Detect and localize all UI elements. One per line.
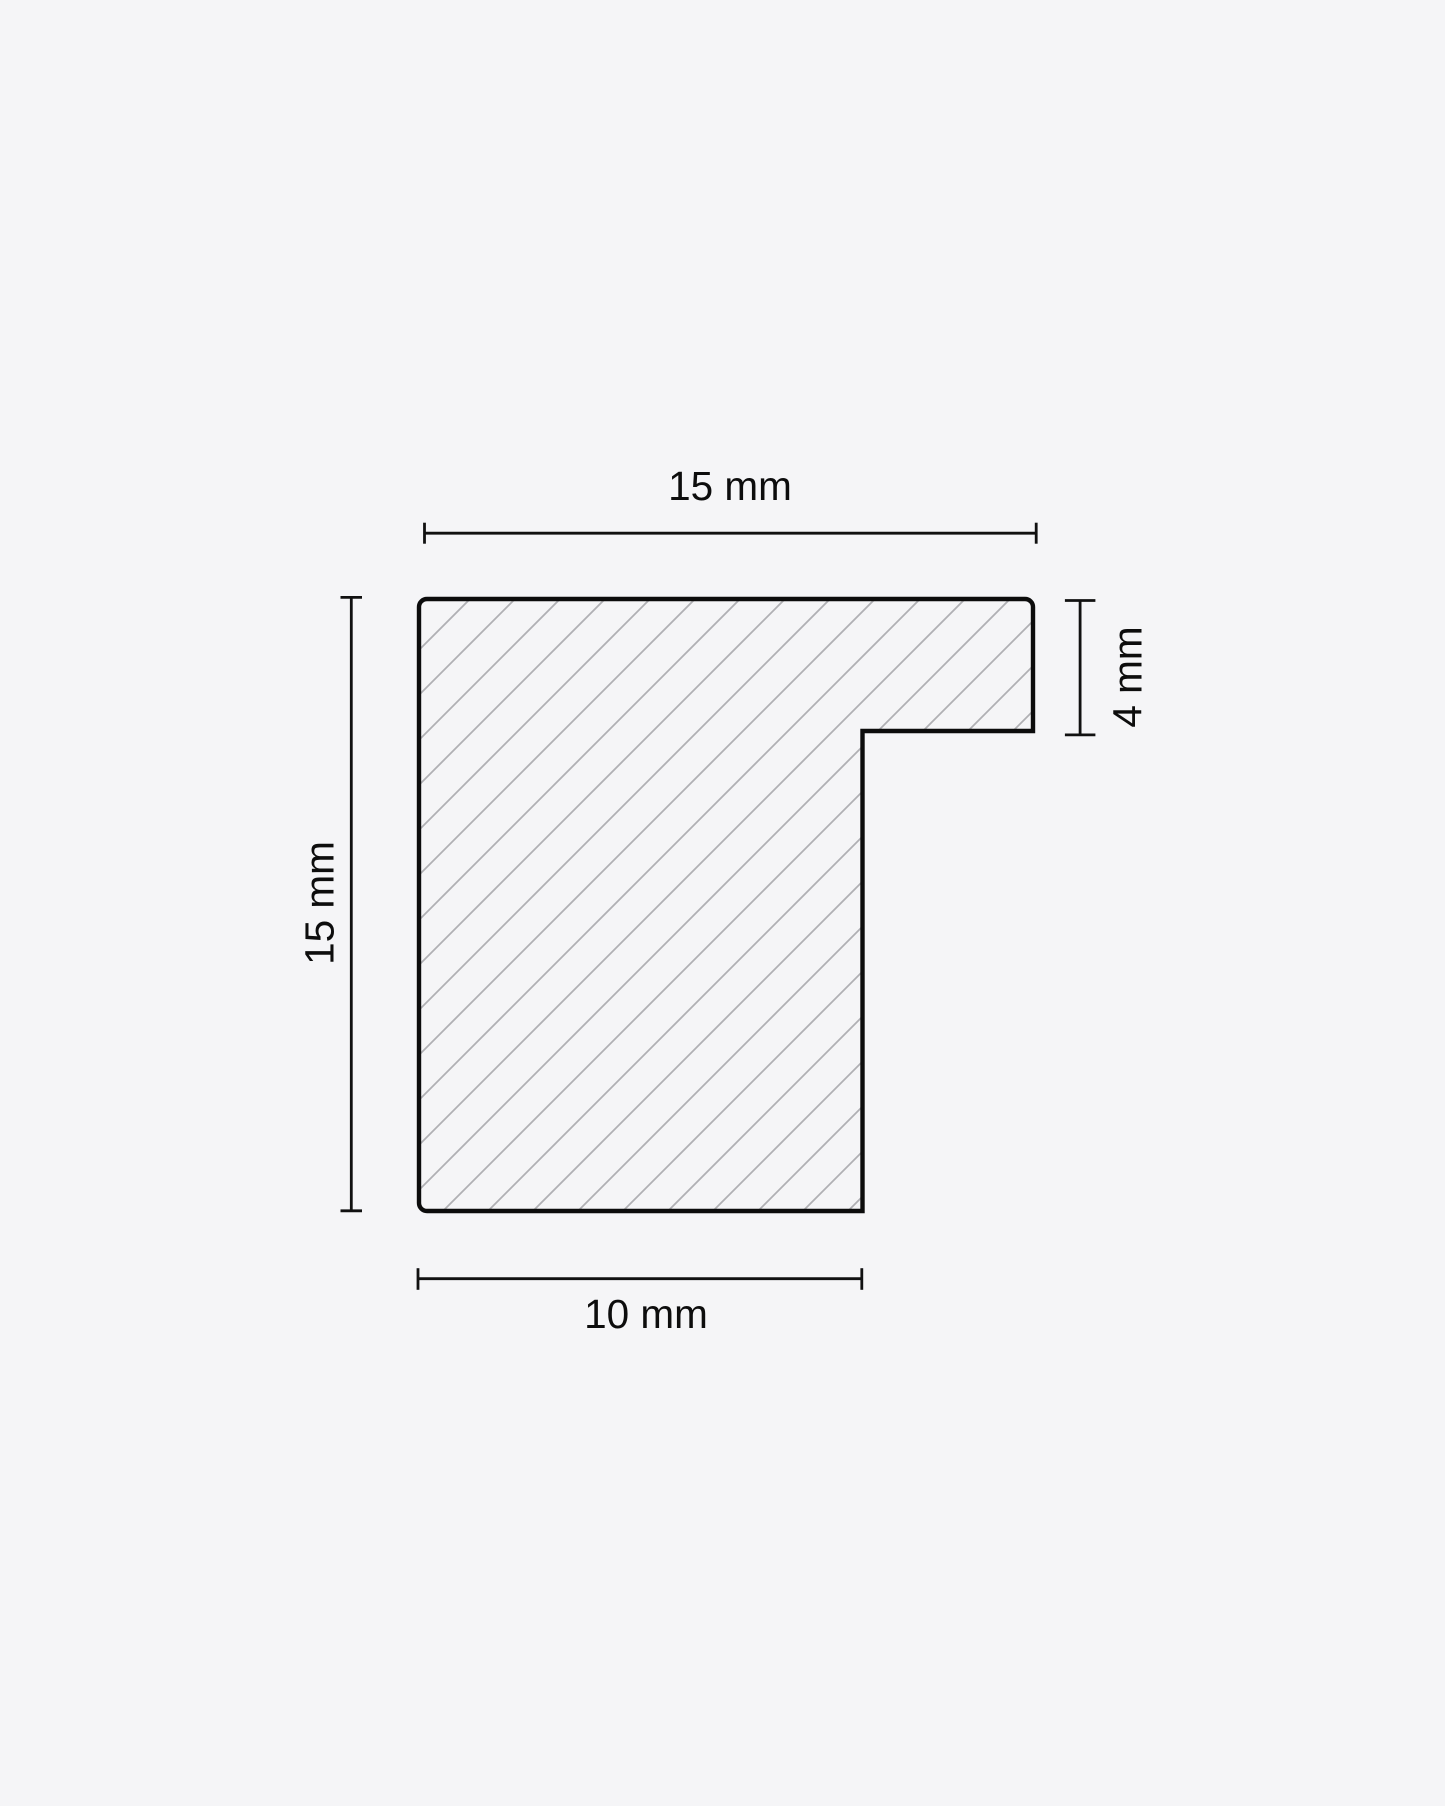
svg-text:15 mm: 15 mm xyxy=(668,463,792,509)
svg-text:10 mm: 10 mm xyxy=(584,1291,708,1337)
svg-text:15 mm: 15 mm xyxy=(297,841,343,965)
svg-text:4 mm: 4 mm xyxy=(1105,626,1151,727)
